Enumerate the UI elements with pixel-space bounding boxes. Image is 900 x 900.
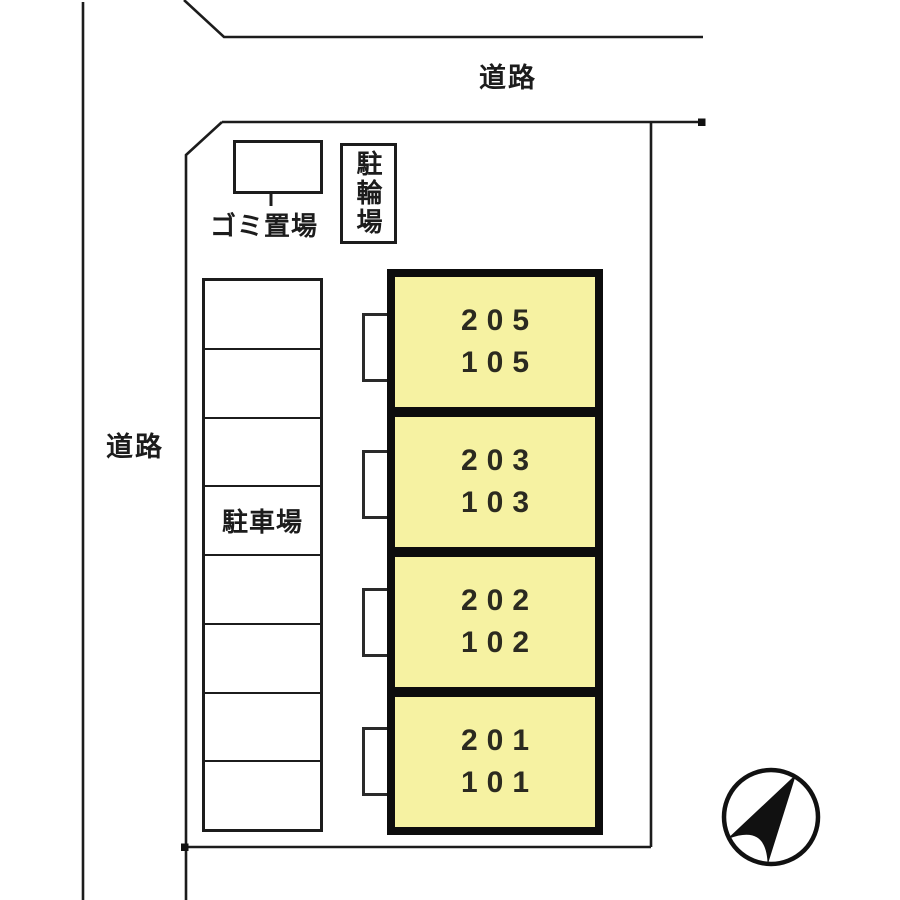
parking-space-2 [205,348,320,417]
parking-space-3 [205,417,320,486]
unit-201-101: 201 101 [395,697,595,827]
parking-space-4: 駐車場 [205,485,320,554]
unit-lower-number: 101 [461,762,538,804]
parking-lot: 駐車場 [202,278,323,832]
boundary-point-top-right [698,119,706,127]
unit-202-102: 202 102 [395,557,595,687]
parking-lot-label: 駐車場 [222,502,303,539]
entrance-porch-unit-205 [362,313,390,382]
parking-space-5 [205,554,320,623]
road-label-left: 道路 [99,425,171,464]
north-arrow-icon [716,762,826,872]
entrance-porch-unit-203 [362,450,390,519]
site-plan: 道路 道路 ゴミ置場 駐輪場 駐車場 205 105 203 103 2 [0,0,900,900]
unit-lower-number: 103 [461,482,538,524]
boundary-point-bottom-left [181,844,189,852]
entrance-porch-unit-201 [362,727,390,796]
apartment-building: 205 105 203 103 202 102 201 101 [387,269,603,835]
entrance-porch-unit-202 [362,588,390,657]
garbage-area-box [233,140,323,194]
parking-space-8 [205,760,320,829]
unit-lower-number: 102 [461,622,538,664]
unit-203-103: 203 103 [395,417,595,547]
unit-upper-number: 201 [461,720,538,762]
unit-upper-number: 202 [461,580,538,622]
unit-upper-number: 203 [461,440,538,482]
bicycle-parking-label: 駐輪場 [350,150,387,237]
unit-upper-number: 205 [461,300,538,342]
parking-space-7 [205,692,320,761]
unit-lower-number: 105 [461,342,538,384]
parking-space-1 [205,281,320,348]
top-road-edge-line [184,0,703,37]
road-label-top: 道路 [443,56,573,95]
garbage-area-label: ゴミ置場 [203,206,325,243]
parking-space-6 [205,623,320,692]
unit-205-105: 205 105 [395,277,595,407]
bicycle-parking-box: 駐輪場 [340,143,397,244]
